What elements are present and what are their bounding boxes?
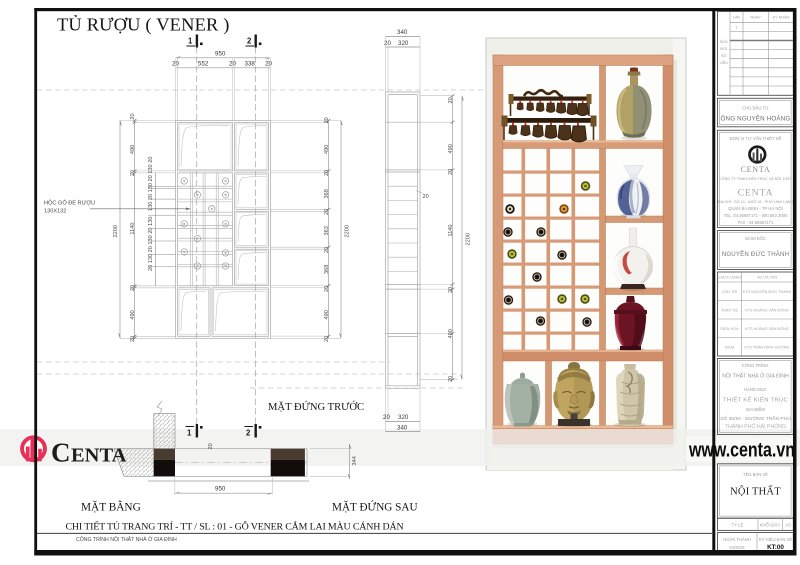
svg-text:1140: 1140	[130, 223, 136, 235]
svg-text:NGÀY: NGÀY	[750, 15, 761, 19]
svg-text:KTS TRẦN ĐÌNH CƯỜNG: KTS TRẦN ĐÌNH CƯỜNG	[744, 344, 789, 349]
svg-text:320: 320	[398, 40, 409, 47]
svg-text:ĐỔI: ĐỔI	[720, 46, 727, 51]
svg-text:2: 2	[246, 429, 251, 438]
svg-text:www.centa.vn: www.centa.vn	[688, 440, 795, 462]
svg-text:490: 490	[130, 310, 136, 319]
svg-text:20 130 20 130 20 130: 20 130 20 130 20 130	[148, 217, 154, 271]
svg-text:20: 20	[324, 209, 330, 215]
svg-text:HỘC GỖ ĐỂ RƯỢU: HỘC GỖ ĐỂ RƯỢU	[44, 200, 95, 207]
svg-text:LẦN: LẦN	[733, 15, 741, 19]
svg-text:LIỆU: LIỆU	[720, 60, 729, 65]
svg-text:20: 20	[324, 286, 330, 292]
svg-text:340: 340	[397, 425, 408, 432]
svg-text:THÀNH PHỐ HẢI PHÒNG: THÀNH PHỐ HẢI PHÒNG	[725, 423, 786, 430]
svg-text:2200: 2200	[113, 225, 119, 237]
svg-text:TÊN BẢN VẼ: TÊN BẢN VẼ	[743, 472, 768, 477]
svg-text:20: 20	[383, 414, 390, 421]
svg-text:KÝ NHẬN: KÝ NHẬN	[773, 14, 790, 19]
svg-text:490: 490	[130, 145, 136, 154]
svg-text:QUẬN BA ĐÌNH - TP HÀ NỘI: QUẬN BA ĐÌNH - TP HÀ NỘI	[728, 206, 783, 211]
svg-text:ĐƠN VỊ TƯ VẤN THIẾT KẾ: ĐƠN VỊ TƯ VẤN THIẾT KẾ	[730, 136, 782, 141]
svg-text:320: 320	[398, 414, 409, 421]
svg-text:344: 344	[352, 456, 358, 465]
svg-text:NỘI THẤT: NỘI THẤT	[730, 485, 781, 498]
svg-text:TỶ LỆ: TỶ LỆ	[732, 523, 744, 528]
svg-text:TEL :04.66687171 - 090.583 300: TEL :04.66687171 - 090.583 3000	[724, 213, 788, 218]
svg-text:368: 368	[324, 265, 330, 274]
svg-text:20: 20	[130, 336, 136, 342]
svg-text:KIỂM: KIỂM	[725, 344, 734, 349]
svg-text:THIẾT KẾ KIẾN TRÚC: THIẾT KẾ KIẾN TRÚC	[723, 397, 789, 404]
svg-text:950: 950	[215, 486, 226, 493]
svg-text:GIÁM ĐỐC: GIÁM ĐỐC	[745, 236, 766, 241]
svg-text:20: 20	[448, 287, 454, 293]
svg-text:950: 950	[215, 51, 226, 58]
svg-text:DIỄN HỌA: DIỄN HỌA	[720, 326, 739, 331]
svg-text:HOÀN THÀNH: HOÀN THÀNH	[723, 537, 751, 542]
svg-text:340: 340	[397, 29, 408, 36]
svg-text:2200: 2200	[466, 233, 472, 245]
svg-text:1140: 1140	[448, 224, 454, 236]
svg-text:ÔNG NGUYỄN HOÀNG: ÔNG NGUYỄN HOÀNG	[721, 115, 791, 122]
svg-text:20: 20	[448, 169, 454, 175]
svg-text:CÔNG TRÌNH NỘI THẤT NHÀ Ở GIA: CÔNG TRÌNH NỘI THẤT NHÀ Ở GIA ĐÌNH	[76, 536, 177, 543]
svg-text:KHỔ GIẤY: KHỔ GIẤY	[760, 523, 780, 528]
svg-text:490: 490	[324, 145, 330, 154]
svg-text:CHỦ TRÌ: CHỦ TRÌ	[722, 289, 737, 294]
svg-text:TỦ RƯỢU ( VENER ): TỦ RƯỢU ( VENER )	[57, 14, 230, 36]
svg-text:20: 20	[324, 170, 330, 176]
svg-text:KT:00: KT:00	[767, 544, 784, 551]
svg-text:1: 1	[187, 429, 192, 438]
svg-text:20: 20	[130, 170, 136, 176]
svg-text:490: 490	[448, 329, 454, 338]
svg-text:SỬA: SỬA	[720, 39, 729, 44]
svg-text:ĐỊA CHỈ : SỐ 14 - NGÕ 15 - PHỐ: ĐỊA CHỈ : SỐ 14 - NGÕ 15 - PHỐ LINH LANG	[718, 199, 794, 204]
svg-text:ĐỊA ĐIỂM: ĐỊA ĐIỂM	[746, 407, 765, 412]
svg-text:MẶT ĐỨNG SAU: MẶT ĐỨNG SAU	[332, 502, 418, 514]
svg-text:CENTA: CENTA	[738, 188, 774, 199]
svg-text:SỐ: SỐ	[721, 53, 726, 58]
svg-text:MẶT BẰNG: MẶT BẰNG	[81, 501, 141, 514]
svg-text:KTS HOÀNG VĂN ĐÔNG: KTS HOÀNG VĂN ĐÔNG	[745, 307, 789, 312]
svg-text:20: 20	[448, 376, 454, 382]
svg-text:KÝ HIỆU BẢN VẼ: KÝ HIỆU BẢN VẼ	[759, 537, 792, 542]
svg-text:CÔNG TY TNHH KIẾN TRÚC VÀ NỘI: CÔNG TY TNHH KIẾN TRÚC VÀ NỘI THẤT	[719, 176, 793, 181]
svg-text:MẶT ĐỨNG TRƯỚC: MẶT ĐỨNG TRƯỚC	[268, 401, 364, 413]
svg-text:CHỨC DANH: CHỨC DANH	[718, 274, 742, 279]
svg-text:CHI TIẾT TỦ TRANG TRÍ - TT / S: CHI TIẾT TỦ TRANG TRÍ - TT / SL : 01 - G…	[66, 520, 404, 533]
svg-text:20: 20	[208, 443, 214, 449]
svg-text:HỌ VÀ TÊN: HỌ VÀ TÊN	[757, 274, 778, 279]
svg-text:490: 490	[448, 144, 454, 153]
svg-text:20: 20	[384, 40, 391, 47]
svg-text:FAX : 04.66687171: FAX : 04.66687171	[738, 220, 775, 225]
svg-text:20: 20	[324, 247, 330, 253]
svg-text:04/2015: 04/2015	[729, 545, 745, 550]
svg-text:363: 363	[324, 226, 330, 235]
svg-text:CHỦ ĐẦU TƯ: CHỦ ĐẦU TƯ	[742, 106, 769, 111]
svg-text:20: 20	[130, 285, 136, 291]
svg-text:KTS NGUYỄN ĐỨC THÀNH: KTS NGUYỄN ĐỨC THÀNH	[743, 289, 792, 294]
svg-text:1: 1	[735, 26, 737, 30]
svg-text:CENTA: CENTA	[740, 165, 770, 174]
svg-text:2200: 2200	[345, 225, 351, 237]
svg-text:KTS HOÀNG VĂN ĐÔNG: KTS HOÀNG VĂN ĐÔNG	[745, 326, 789, 331]
svg-text:HẠNG MỤC: HẠNG MỤC	[744, 387, 767, 392]
svg-text:20: 20	[423, 194, 429, 200]
svg-text:490: 490	[324, 310, 330, 319]
svg-text:1: 1	[188, 37, 193, 46]
svg-text:NỘI THẤT NHÀ Ở GIA ĐÌNH: NỘI THẤT NHÀ Ở GIA ĐÌNH	[722, 373, 789, 380]
svg-text:130 20 130 20 130 20: 130 20 130 20 130 20	[148, 157, 154, 211]
svg-text:NGUYỄN ĐỨC THÀNH: NGUYỄN ĐỨC THÀNH	[722, 251, 790, 258]
svg-text:20: 20	[130, 113, 136, 119]
svg-text:20: 20	[324, 336, 330, 342]
svg-text:SỐ 35/94 - ĐƯỜNG TRẦN PHÚ: SỐ 35/94 - ĐƯỜNG TRẦN PHÚ	[720, 415, 791, 422]
svg-text:20: 20	[448, 97, 454, 103]
svg-text:552: 552	[198, 61, 209, 68]
svg-text:20: 20	[324, 117, 330, 123]
svg-text:368: 368	[324, 189, 330, 198]
svg-text:THIẾT KẾ: THIẾT KẾ	[721, 307, 738, 312]
svg-text:338: 338	[245, 61, 256, 68]
svg-text:CÔNG TRÌNH:: CÔNG TRÌNH:	[742, 363, 770, 368]
svg-text:130X132: 130X132	[44, 209, 66, 215]
svg-text:2: 2	[247, 37, 252, 46]
svg-text:A3: A3	[785, 523, 791, 528]
